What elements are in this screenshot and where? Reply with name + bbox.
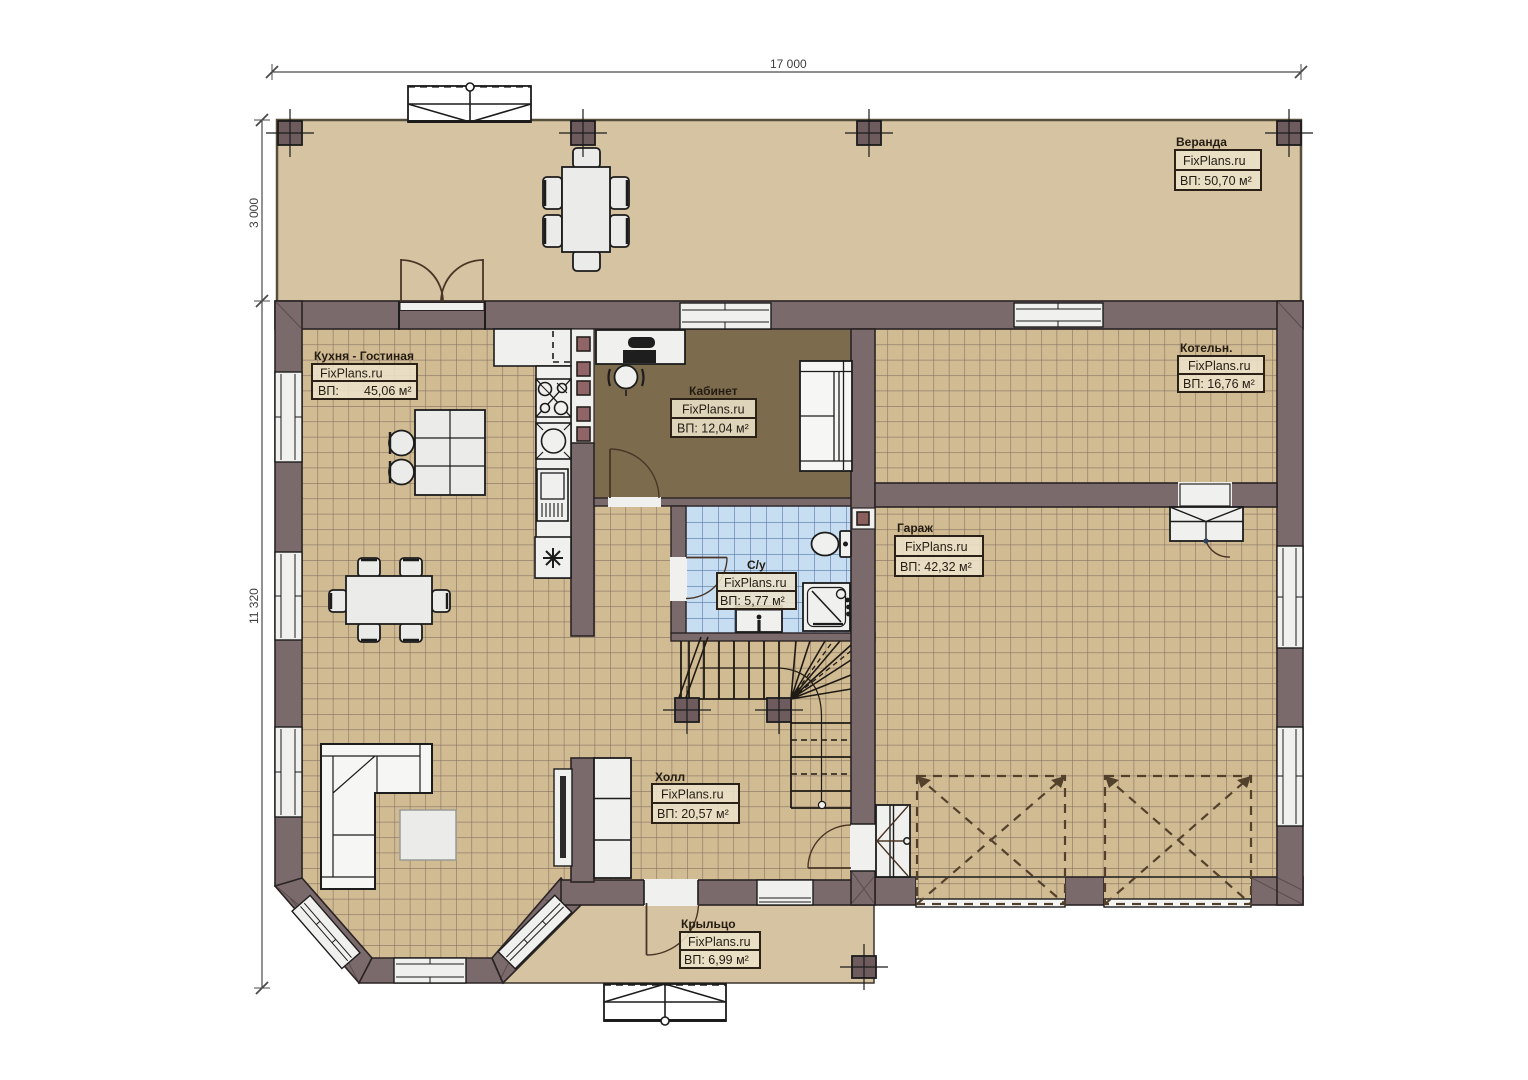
svg-text:Кабинет: Кабинет xyxy=(689,384,738,398)
svg-text:FixPlans.ru: FixPlans.ru xyxy=(682,403,745,417)
svg-text:FixPlans.ru: FixPlans.ru xyxy=(320,367,383,381)
svg-text:Кухня - Гостиная: Кухня - Гостиная xyxy=(314,349,414,363)
svg-text:FixPlans.ru: FixPlans.ru xyxy=(1183,154,1246,168)
svg-text:С/у: С/у xyxy=(747,558,766,572)
svg-text:FixPlans.ru: FixPlans.ru xyxy=(661,788,724,802)
svg-text:Крыльцо: Крыльцо xyxy=(681,917,736,931)
svg-text:17 000: 17 000 xyxy=(770,57,807,71)
svg-text:Котельн.: Котельн. xyxy=(1180,341,1233,355)
svg-text:ВП: 20,57 м²: ВП: 20,57 м² xyxy=(657,807,729,821)
svg-text:3 000: 3 000 xyxy=(247,198,261,228)
svg-text:Гараж: Гараж xyxy=(897,521,933,535)
svg-text:FixPlans.ru: FixPlans.ru xyxy=(1188,359,1251,373)
svg-text:ВП: 6,99 м²: ВП: 6,99 м² xyxy=(684,953,749,967)
svg-text:ВП: 5,77 м²: ВП: 5,77 м² xyxy=(720,594,785,608)
svg-text:ВП: 12,04 м²: ВП: 12,04 м² xyxy=(677,422,749,436)
svg-text:FixPlans.ru: FixPlans.ru xyxy=(724,576,787,590)
svg-text:FixPlans.ru: FixPlans.ru xyxy=(905,540,968,554)
svg-text:45,06 м²: 45,06 м² xyxy=(364,384,412,398)
svg-text:ВП: 16,76 м²: ВП: 16,76 м² xyxy=(1183,377,1255,391)
svg-text:Холл: Холл xyxy=(655,770,685,784)
svg-text:FixPlans.ru: FixPlans.ru xyxy=(688,935,751,949)
svg-text:ВП:: ВП: xyxy=(318,384,339,398)
svg-text:ВП: 42,32 м²: ВП: 42,32 м² xyxy=(900,560,972,574)
svg-text:Веранда: Веранда xyxy=(1176,135,1227,149)
svg-text:11 320: 11 320 xyxy=(247,588,261,624)
svg-text:ВП: 50,70 м²: ВП: 50,70 м² xyxy=(1180,174,1252,188)
